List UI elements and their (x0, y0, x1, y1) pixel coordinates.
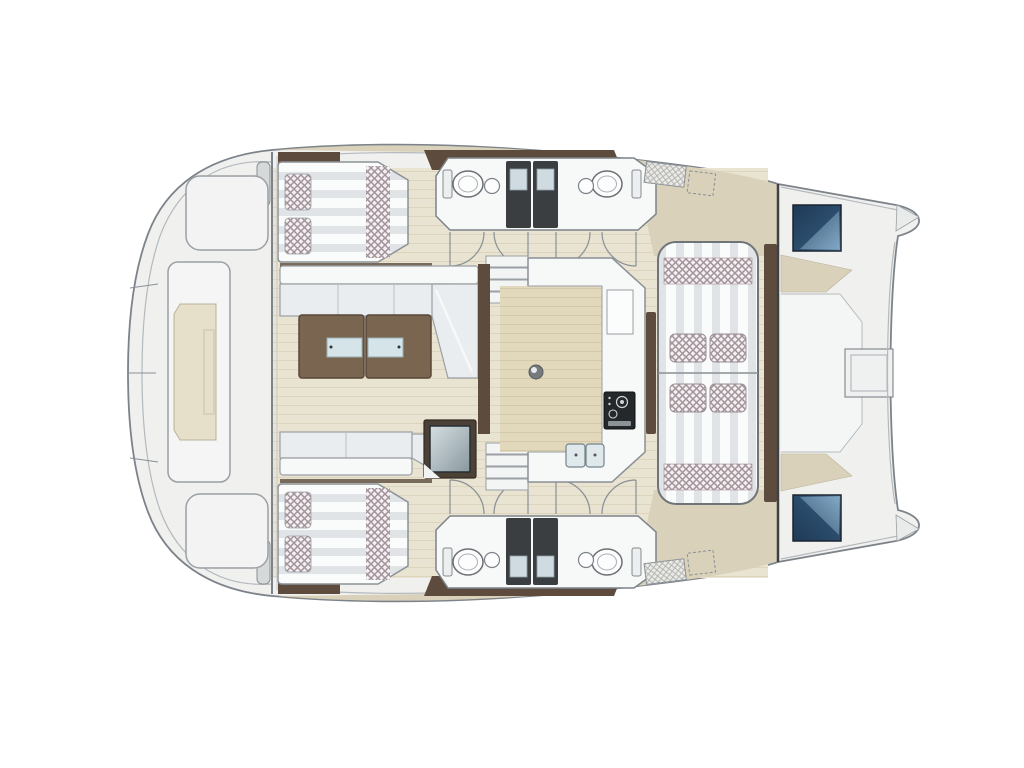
sofa-backrest (280, 266, 478, 284)
salon (280, 263, 490, 483)
foredeck-hatch (845, 349, 893, 397)
counter-hatch (607, 290, 633, 334)
glass-latch (398, 346, 401, 349)
aft-bench-outline (186, 176, 268, 250)
aft-sofa-backrest (280, 458, 412, 475)
aft-bench-outline (186, 494, 268, 568)
stove-icon (604, 392, 635, 429)
salon-aft-wall (280, 479, 432, 483)
seat-cushion (670, 384, 706, 412)
tender-platform-panel (174, 304, 216, 440)
seat-cushion (710, 334, 746, 362)
salon-pillar-wall (478, 264, 490, 380)
salon-pillar-wall (478, 378, 490, 434)
floor-pedestal-fitting (529, 365, 543, 379)
sofa-seat-cushions (280, 284, 452, 316)
seat-cushion (670, 334, 706, 362)
forward-cockpit-loungers (646, 242, 777, 504)
lounger-side-rail (764, 244, 777, 502)
cooler-cabinet (424, 420, 476, 478)
lounger-head-band (664, 464, 752, 490)
catamaran-deck-plan (0, 0, 1024, 768)
seat-cushion (710, 384, 746, 412)
double-sink-icon (566, 444, 604, 467)
lounger-head-band (664, 258, 752, 284)
lounger-side-rail (646, 312, 656, 434)
galley (500, 258, 645, 482)
glass-latch (330, 346, 333, 349)
galley-floor (500, 286, 602, 452)
